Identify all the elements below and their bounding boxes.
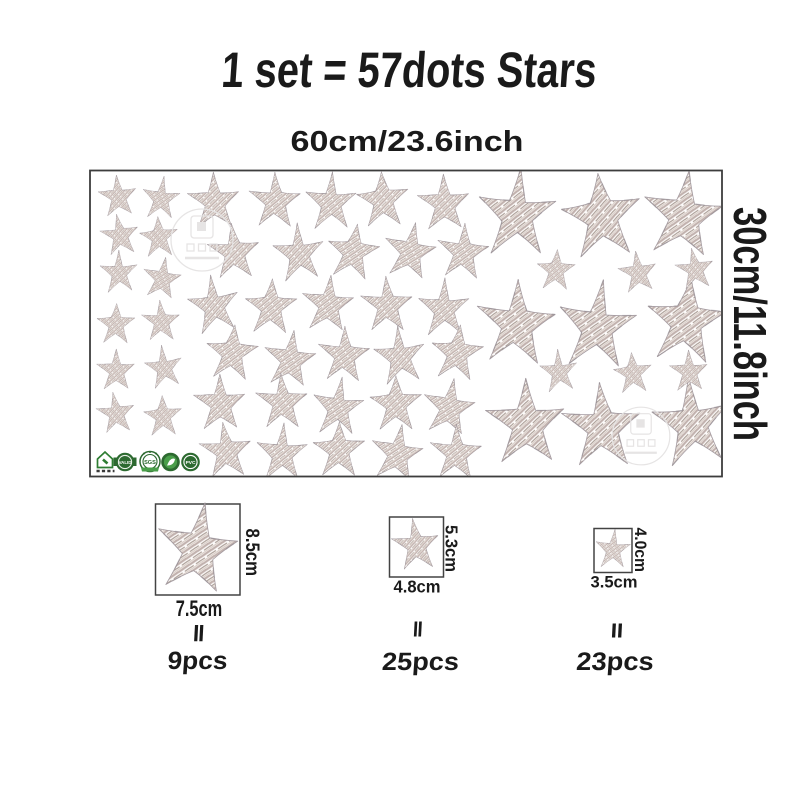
svg-text:4.8cm: 4.8cm	[394, 577, 441, 597]
svg-text:VALID: VALID	[119, 460, 132, 465]
svg-text:1 set = 57dots Stars: 1 set = 57dots Stars	[220, 42, 599, 98]
svg-text:SGS: SGS	[144, 460, 156, 466]
svg-text:3.5cm: 3.5cm	[591, 574, 638, 592]
svg-text:25pcs: 25pcs	[381, 648, 460, 676]
svg-text:5.3cm: 5.3cm	[442, 525, 462, 572]
svg-text:9pcs: 9pcs	[167, 647, 229, 675]
svg-text:PVC: PVC	[186, 460, 196, 466]
svg-text:7.5cm: 7.5cm	[176, 596, 223, 621]
svg-text:30cm/11.8inch: 30cm/11.8inch	[724, 207, 776, 441]
svg-text:8.5cm: 8.5cm	[241, 529, 262, 577]
svg-text:60cm/23.6inch: 60cm/23.6inch	[291, 126, 524, 158]
svg-text:4.0cm: 4.0cm	[631, 528, 649, 573]
svg-text:23pcs: 23pcs	[575, 648, 654, 676]
